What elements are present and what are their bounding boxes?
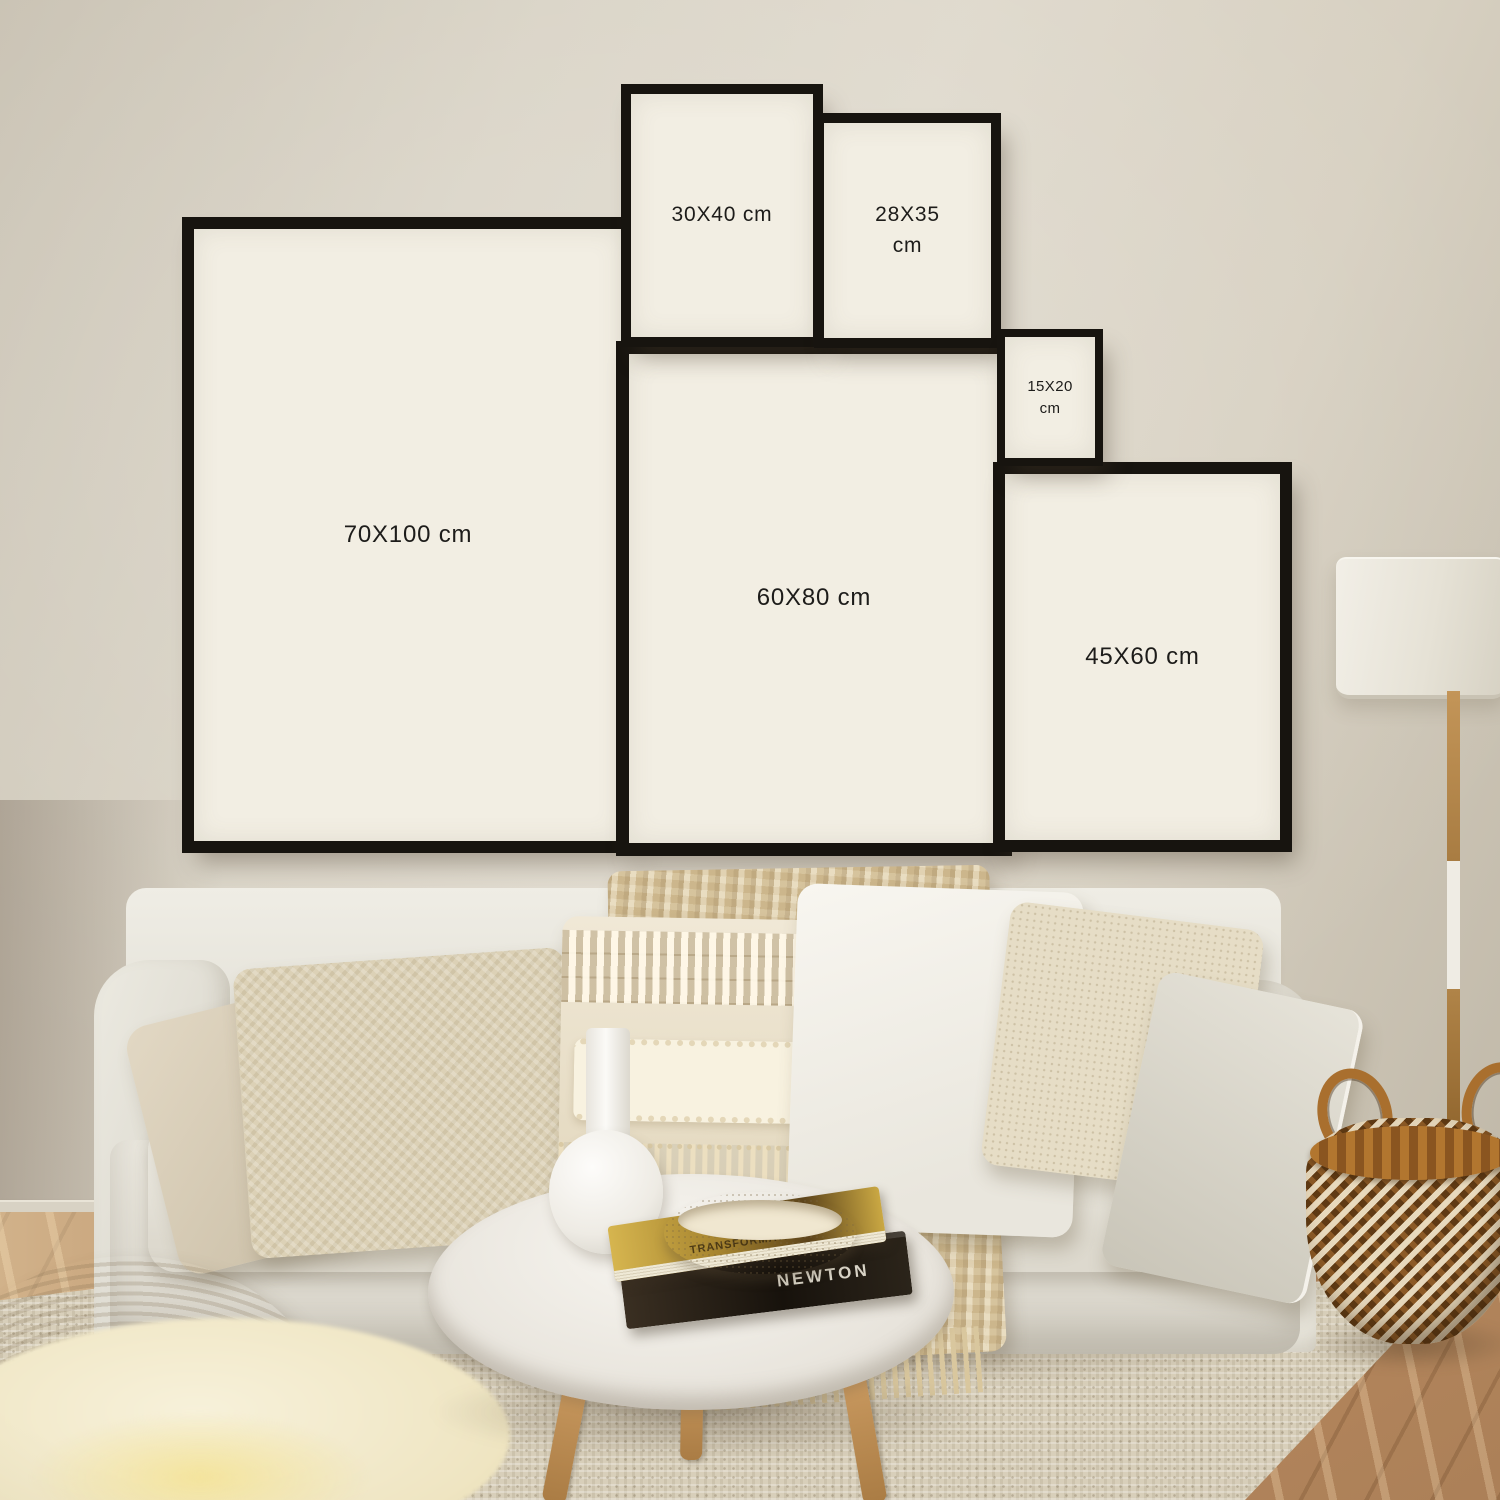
frame-size-label: 70X100 cm	[344, 518, 473, 553]
floor-lamp-pole	[1447, 861, 1460, 991]
basket-rim	[1310, 1126, 1500, 1180]
floor-lamp-pole	[1447, 989, 1460, 1129]
frame-size-label: 45X60 cm	[1085, 640, 1199, 675]
living-room-frame-size-mockup: 70X100 cm 60X80 cm 45X60 cm 30X40 cm 28X…	[0, 0, 1500, 1500]
frame-15x20-cm: 15X20 cm	[997, 329, 1103, 466]
floor-lamp-pole	[1447, 691, 1460, 863]
frame-size-label: 15X20 cm	[1022, 376, 1078, 420]
frame-45x60-cm: 45X60 cm	[993, 462, 1292, 852]
floor-lamp-shade	[1336, 557, 1500, 699]
frame-60x80-cm: 60X80 cm	[616, 341, 1012, 856]
bowl-interior	[678, 1200, 842, 1240]
ceramic-bowl	[664, 1192, 856, 1274]
frame-30x40-cm: 30X40 cm	[621, 84, 823, 347]
frame-28x35-cm: 28X35 cm	[814, 113, 1001, 348]
frame-size-label: 28X35 cm	[862, 200, 954, 261]
frame-70x100-cm: 70X100 cm	[182, 217, 634, 853]
frame-size-label: 60X80 cm	[757, 581, 871, 616]
frame-size-label: 30X40 cm	[672, 200, 773, 230]
